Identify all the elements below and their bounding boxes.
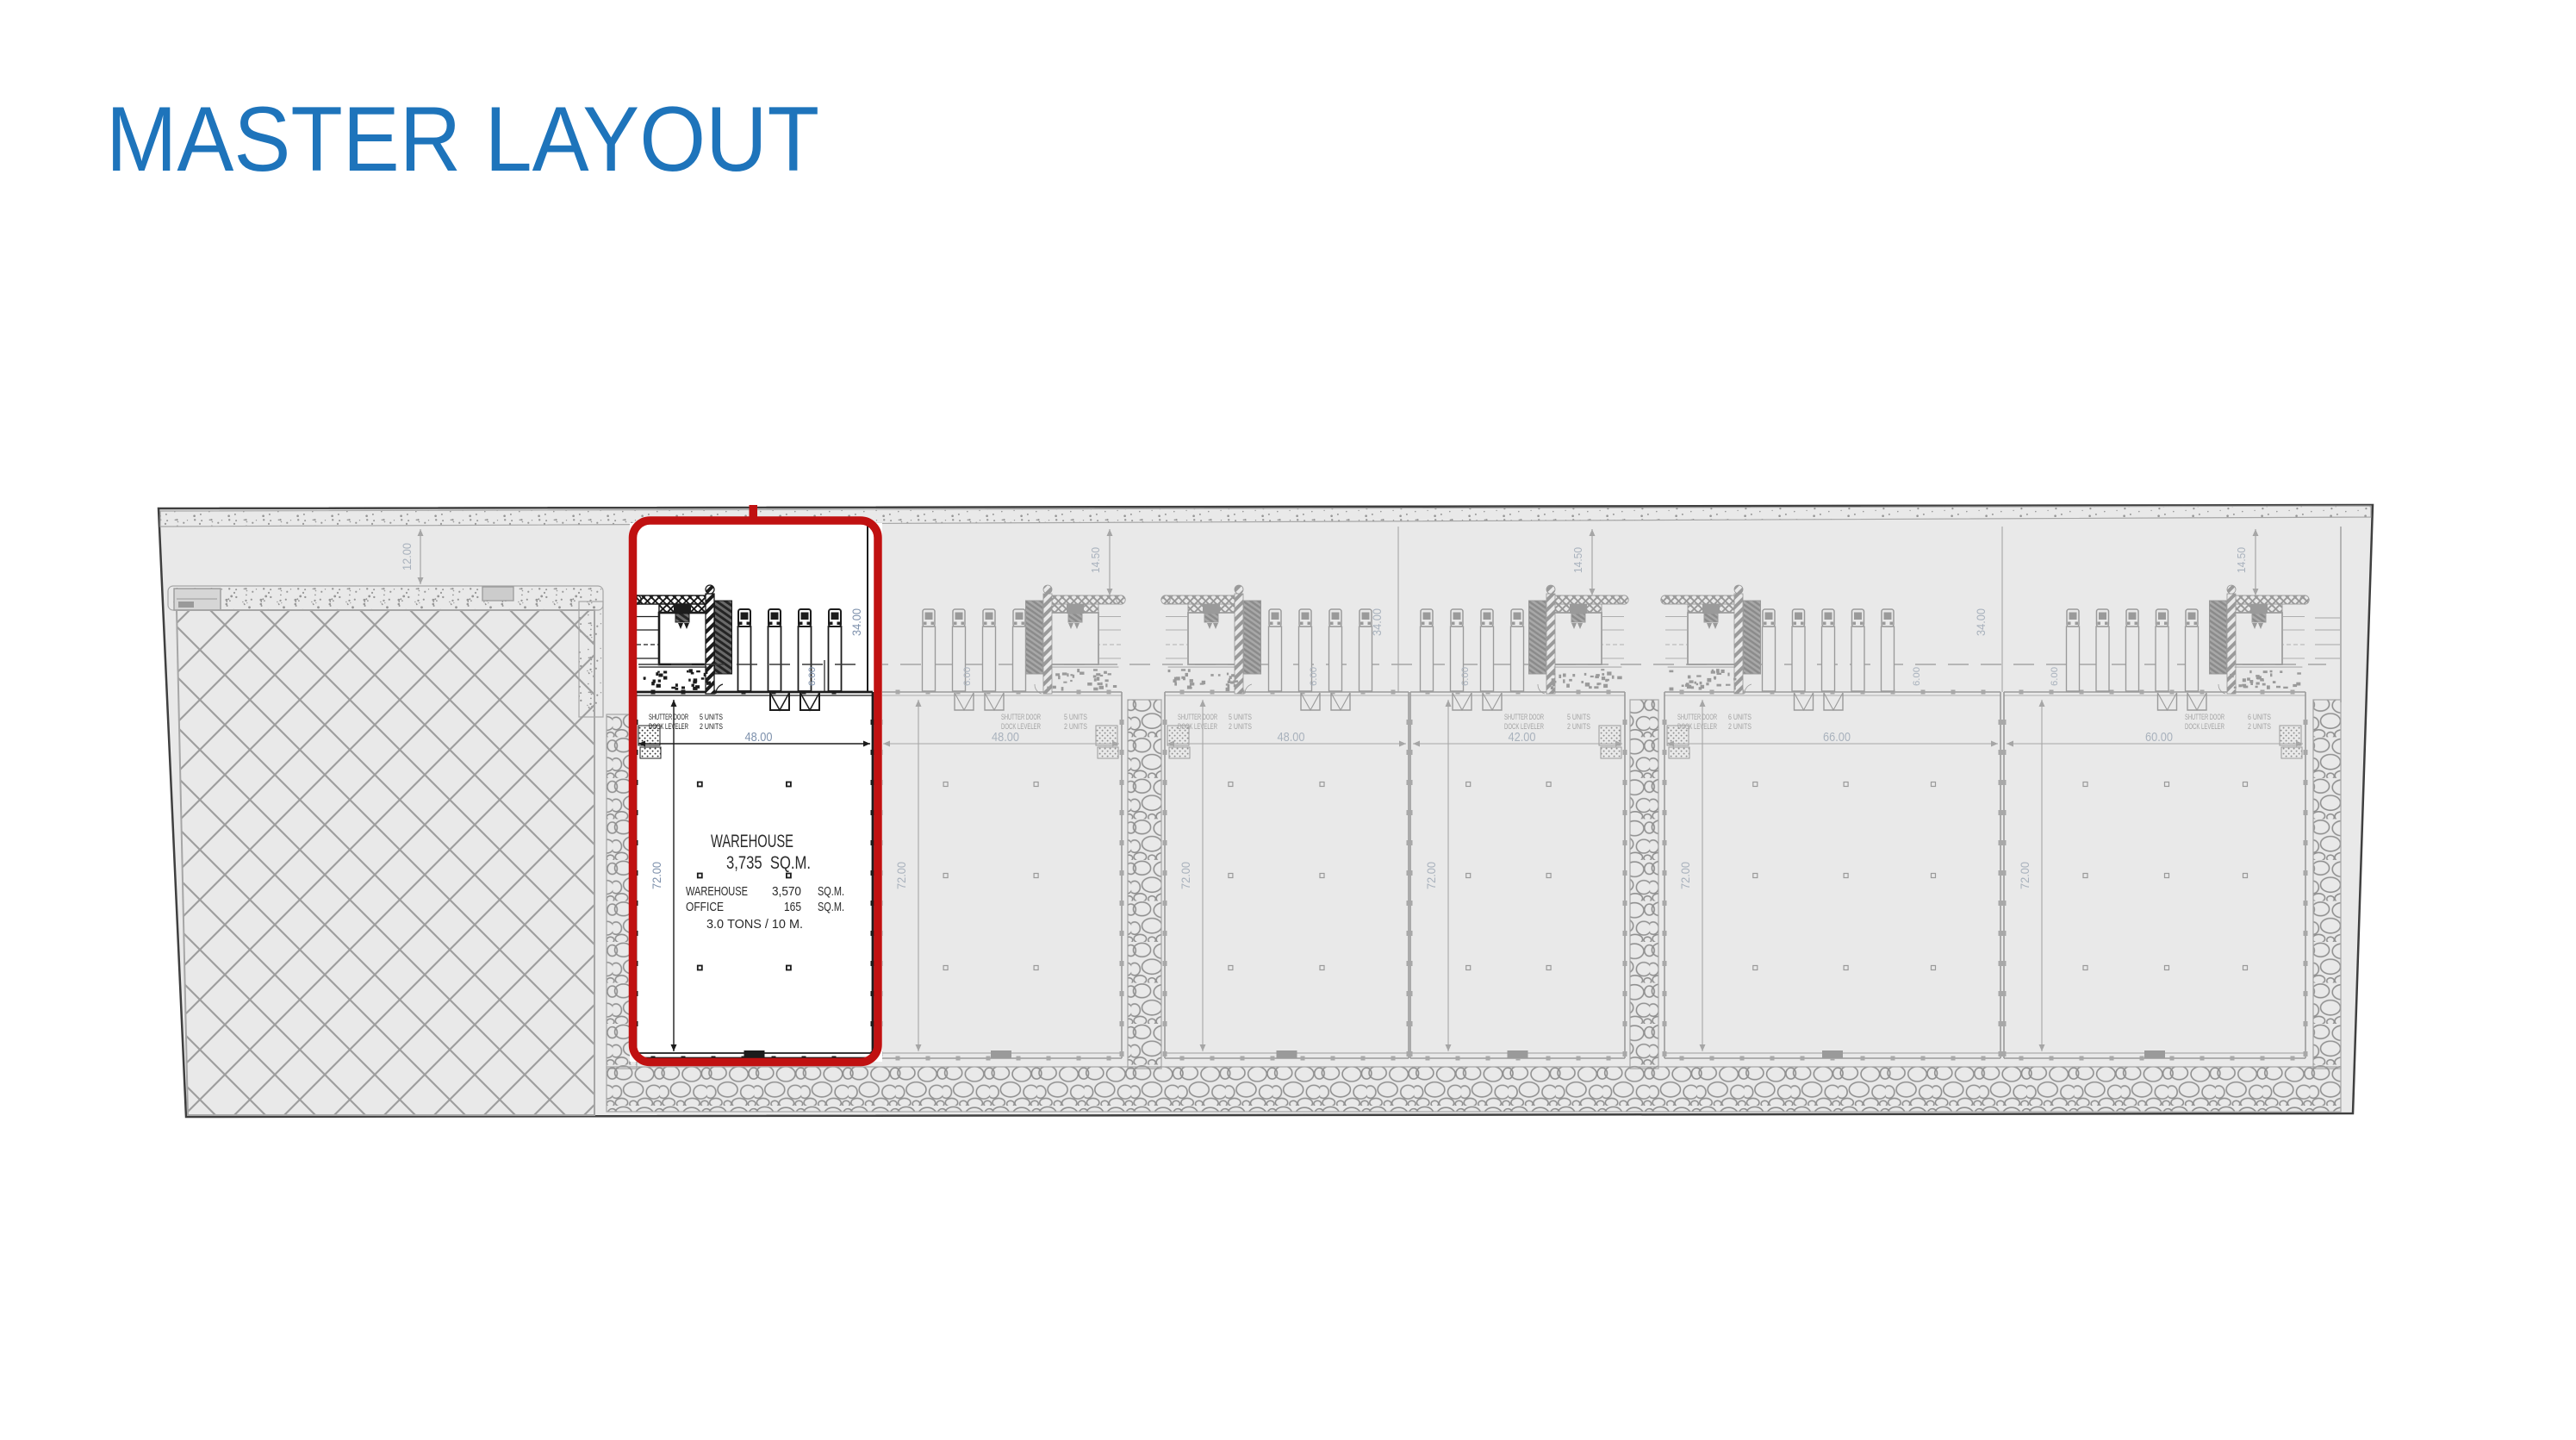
svg-text:6.00: 6.00 — [1460, 667, 1471, 686]
svg-text:SQ.M.: SQ.M. — [818, 884, 844, 899]
svg-text:2 UNITS: 2 UNITS — [1567, 722, 1590, 731]
svg-text:2 UNITS: 2 UNITS — [2248, 722, 2271, 731]
svg-text:60.00: 60.00 — [2145, 730, 2173, 745]
svg-text:48.00: 48.00 — [1278, 730, 1305, 745]
svg-text:WAREHOUSE: WAREHOUSE — [711, 832, 793, 851]
svg-text:34.00: 34.00 — [849, 608, 863, 636]
svg-text:6 UNITS: 6 UNITS — [1728, 713, 1752, 721]
svg-text:72.00: 72.00 — [2018, 862, 2032, 889]
svg-text:SHUTTER DOOR: SHUTTER DOOR — [1178, 713, 1217, 721]
svg-text:66.00: 66.00 — [1823, 730, 1851, 745]
svg-text:6 UNITS: 6 UNITS — [2248, 713, 2271, 721]
svg-text:5 UNITS: 5 UNITS — [1229, 713, 1252, 721]
svg-text:6.00: 6.00 — [1309, 667, 1319, 686]
svg-text:2 UNITS: 2 UNITS — [1064, 722, 1087, 731]
svg-text:72.00: 72.00 — [1424, 862, 1438, 889]
svg-text:5 UNITS: 5 UNITS — [1064, 713, 1087, 721]
svg-text:3,735 SQ.M.: 3,735 SQ.M. — [726, 853, 811, 873]
svg-text:72.00: 72.00 — [894, 862, 908, 889]
svg-text:5 UNITS: 5 UNITS — [700, 713, 723, 721]
svg-text:48.00: 48.00 — [992, 730, 1019, 745]
svg-text:72.00: 72.00 — [650, 862, 663, 889]
svg-text:3.0 TONS / 10 M.: 3.0 TONS / 10 M. — [706, 917, 803, 932]
svg-text:5 UNITS: 5 UNITS — [1567, 713, 1590, 721]
svg-text:12.00: 12.00 — [400, 543, 414, 570]
svg-text:DOCK LEVELER: DOCK LEVELER — [1677, 722, 1717, 731]
svg-text:34.00: 34.00 — [1974, 608, 1988, 636]
svg-text:2 UNITS: 2 UNITS — [700, 722, 723, 731]
svg-text:72.00: 72.00 — [1179, 862, 1192, 889]
svg-text:OFFICE: OFFICE — [686, 900, 724, 914]
svg-text:3,570: 3,570 — [772, 884, 801, 899]
svg-text:MASTER LAYOUT: MASTER LAYOUT — [106, 87, 819, 190]
svg-text:SHUTTER DOOR: SHUTTER DOOR — [1677, 713, 1717, 721]
svg-text:SQ.M.: SQ.M. — [818, 900, 844, 914]
svg-text:165: 165 — [784, 900, 801, 914]
svg-text:2 UNITS: 2 UNITS — [1229, 722, 1252, 731]
svg-text:DOCK LEVELER: DOCK LEVELER — [2185, 722, 2224, 731]
svg-text:DOCK LEVELER: DOCK LEVELER — [1178, 722, 1217, 731]
svg-text:6.00: 6.00 — [962, 667, 973, 686]
svg-text:SHUTTER DOOR: SHUTTER DOOR — [1001, 713, 1041, 721]
svg-text:SHUTTER DOOR: SHUTTER DOOR — [2185, 713, 2224, 721]
svg-text:72.00: 72.00 — [1678, 862, 1692, 889]
svg-text:34.00: 34.00 — [1370, 608, 1384, 636]
svg-text:14.50: 14.50 — [2235, 547, 2248, 573]
svg-text:2 UNITS: 2 UNITS — [1728, 722, 1752, 731]
svg-text:6.00: 6.00 — [2050, 667, 2060, 686]
svg-text:42.00: 42.00 — [1509, 730, 1536, 745]
svg-text:48.00: 48.00 — [745, 730, 773, 745]
svg-text:14.50: 14.50 — [1571, 547, 1584, 573]
svg-text:6.00: 6.00 — [807, 667, 818, 686]
svg-text:SHUTTER DOOR: SHUTTER DOOR — [649, 713, 688, 721]
svg-text:DOCK LEVELER: DOCK LEVELER — [649, 722, 688, 731]
svg-text:6.00: 6.00 — [1912, 667, 1922, 686]
svg-text:WAREHOUSE: WAREHOUSE — [686, 884, 748, 899]
svg-text:14.50: 14.50 — [1089, 547, 1102, 573]
svg-text:SHUTTER DOOR: SHUTTER DOOR — [1504, 713, 1544, 721]
